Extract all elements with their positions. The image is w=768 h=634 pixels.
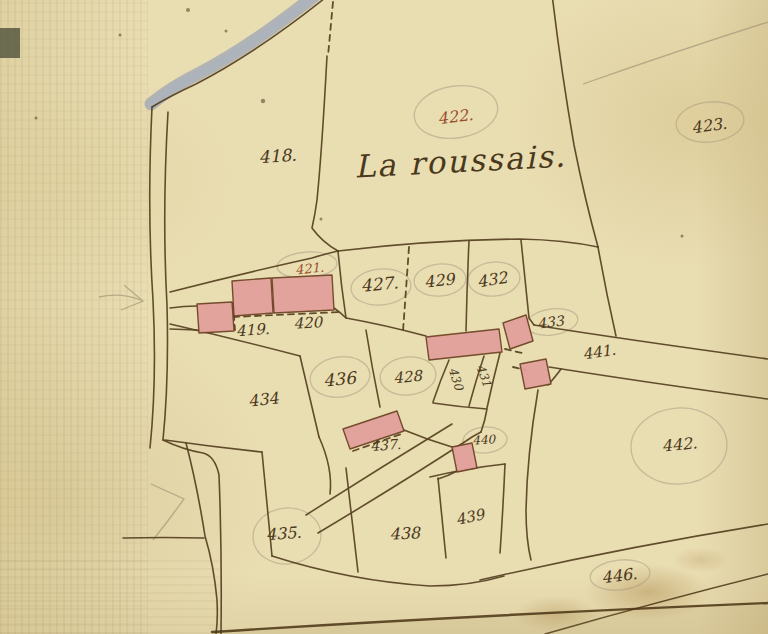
parcel-label-432: 432 (476, 268, 510, 292)
parcel-label-436: 436 (322, 367, 358, 390)
boundary-438-439 (438, 478, 446, 558)
building-433 (503, 315, 533, 349)
ink-speck (320, 218, 323, 221)
building-419-west (232, 278, 273, 316)
paper-blemishes (0, 8, 684, 238)
pencil-road-widening (151, 484, 184, 540)
pencil-line-topright (583, 22, 768, 84)
parcel-label-418: 418. (258, 145, 297, 168)
boundary-442-left (526, 390, 538, 560)
ink-speck (261, 99, 265, 103)
parcel-label-420: 420 (293, 313, 324, 333)
boundary-422-423 (552, 0, 598, 247)
parcel-label-438: 438 (389, 523, 422, 544)
road-left-edge (150, 107, 155, 448)
parcel-label-421: 421. (294, 260, 324, 278)
parcel-label-429: 429 (423, 269, 457, 292)
boundary-bottom-fields (272, 556, 504, 586)
parcel-label-428: 428 (393, 367, 425, 388)
strip-430-left (433, 360, 449, 402)
boundary-434-436 (300, 356, 319, 437)
strip-441-upper (534, 325, 768, 359)
parcel-label-442: 442. (661, 433, 698, 456)
boundary-418-right (312, 56, 338, 251)
map-title: La roussais. (353, 137, 567, 184)
parcel-label-441: 441. (581, 341, 617, 364)
building-left-small (197, 302, 234, 333)
boundary-421-427 (338, 251, 346, 318)
boundary-row-bottom-west (334, 308, 426, 336)
building-yard-long (426, 329, 502, 360)
cadastral-map-sheet: La roussais. 418.422.423.421.427.4294324… (0, 0, 768, 634)
parcel-label-431: 431 (473, 362, 494, 388)
boundary-437-west (319, 437, 331, 494)
pencil-arrow-mark (99, 285, 143, 310)
parcel-label-439: 439 (454, 505, 487, 529)
ink-speck (35, 117, 38, 120)
ink-speck (681, 235, 684, 238)
boundary-439-right (500, 464, 505, 553)
parcel-label-434: 434 (247, 388, 280, 411)
field-line-west (123, 538, 204, 539)
ink-speck (225, 30, 228, 33)
cadastral-map-canvas: La roussais. 418.422.423.421.427.4294324… (0, 0, 768, 634)
boundary-433-right (598, 247, 616, 336)
boundary-434-bottom (165, 440, 262, 452)
boundary-432-right (521, 240, 534, 325)
path-437-to-440 (404, 430, 452, 447)
parcel-label-435: 435. (265, 523, 302, 544)
building-420-east (272, 275, 334, 313)
building-431-south (520, 359, 551, 389)
parcel-label-430: 430 (446, 366, 467, 393)
parcel-label-437: 437. (370, 436, 402, 454)
dashed-418-top (328, 2, 333, 56)
parcel-label-446: 446. (600, 564, 638, 587)
parcel-label-427: 427. (360, 272, 399, 295)
ink-speck (119, 34, 122, 37)
dashed-427-429 (403, 247, 409, 331)
road-right-edge (163, 112, 168, 440)
parcel-label-423: 423. (690, 114, 728, 138)
parcel-label-433: 433 (536, 312, 566, 331)
parcel-label-419: 419. (235, 320, 270, 340)
parcel-label-422: 422. (436, 105, 474, 128)
boundary-429-432 (466, 241, 469, 331)
stream-wash-highlight (151, 0, 318, 104)
corner-dark-mark (0, 28, 20, 58)
strip-441-lower (549, 367, 768, 399)
ink-speck (186, 8, 190, 12)
parcel-label-440: 440 (472, 432, 497, 448)
